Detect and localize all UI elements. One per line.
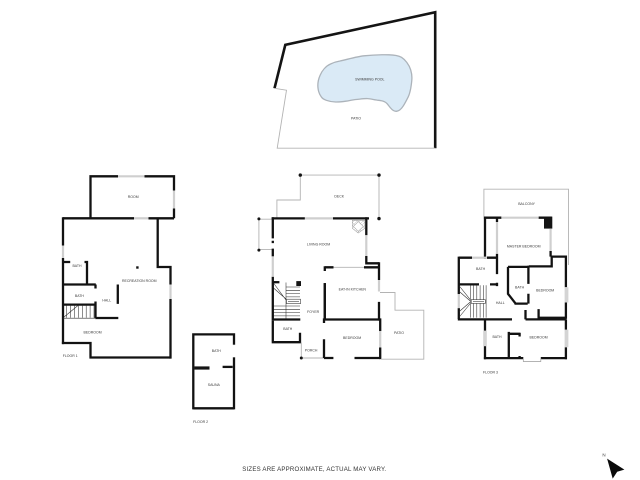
- svg-text:BATH: BATH: [476, 267, 486, 271]
- svg-text:BATH: BATH: [212, 349, 222, 353]
- svg-text:SIZES ARE APPROXIMATE, ACTUAL: SIZES ARE APPROXIMATE, ACTUAL MAY VARY.: [242, 466, 386, 473]
- svg-text:BEDROOM: BEDROOM: [343, 336, 361, 340]
- svg-text:LIVING ROOM: LIVING ROOM: [307, 243, 330, 247]
- svg-text:HALL: HALL: [496, 301, 505, 305]
- svg-text:RECREATION ROOM: RECREATION ROOM: [122, 279, 157, 283]
- svg-text:PATIO: PATIO: [351, 117, 361, 121]
- svg-text:PATIO: PATIO: [394, 331, 404, 335]
- svg-text:BATH: BATH: [492, 335, 502, 339]
- svg-text:BATH: BATH: [72, 264, 82, 268]
- svg-text:BALCONY: BALCONY: [518, 202, 535, 206]
- svg-text:FLOOR 1: FLOOR 1: [63, 354, 78, 358]
- svg-text:N: N: [602, 453, 605, 458]
- svg-text:FOYER: FOYER: [307, 310, 320, 314]
- svg-text:BATH: BATH: [515, 286, 525, 290]
- svg-text:BATH: BATH: [75, 294, 85, 298]
- svg-text:HALL: HALL: [102, 299, 111, 303]
- svg-text:MASTER BEDROOM: MASTER BEDROOM: [507, 245, 541, 249]
- svg-text:EAT-IN KITCHEN: EAT-IN KITCHEN: [339, 287, 367, 291]
- svg-text:SWIMMING POOL: SWIMMING POOL: [355, 77, 384, 81]
- svg-text:BEDROOM: BEDROOM: [536, 288, 554, 292]
- svg-text:FLOOR 2: FLOOR 2: [193, 420, 208, 424]
- svg-text:BEDROOM: BEDROOM: [530, 336, 548, 340]
- svg-text:BATH: BATH: [283, 327, 293, 331]
- svg-text:ROOM: ROOM: [128, 195, 139, 199]
- svg-text:DECK: DECK: [334, 195, 344, 199]
- svg-text:SAUNA: SAUNA: [208, 383, 221, 387]
- svg-text:FLOOR 3: FLOOR 3: [483, 371, 498, 375]
- svg-text:PORCH: PORCH: [305, 349, 318, 353]
- svg-text:BEDROOM: BEDROOM: [84, 331, 102, 335]
